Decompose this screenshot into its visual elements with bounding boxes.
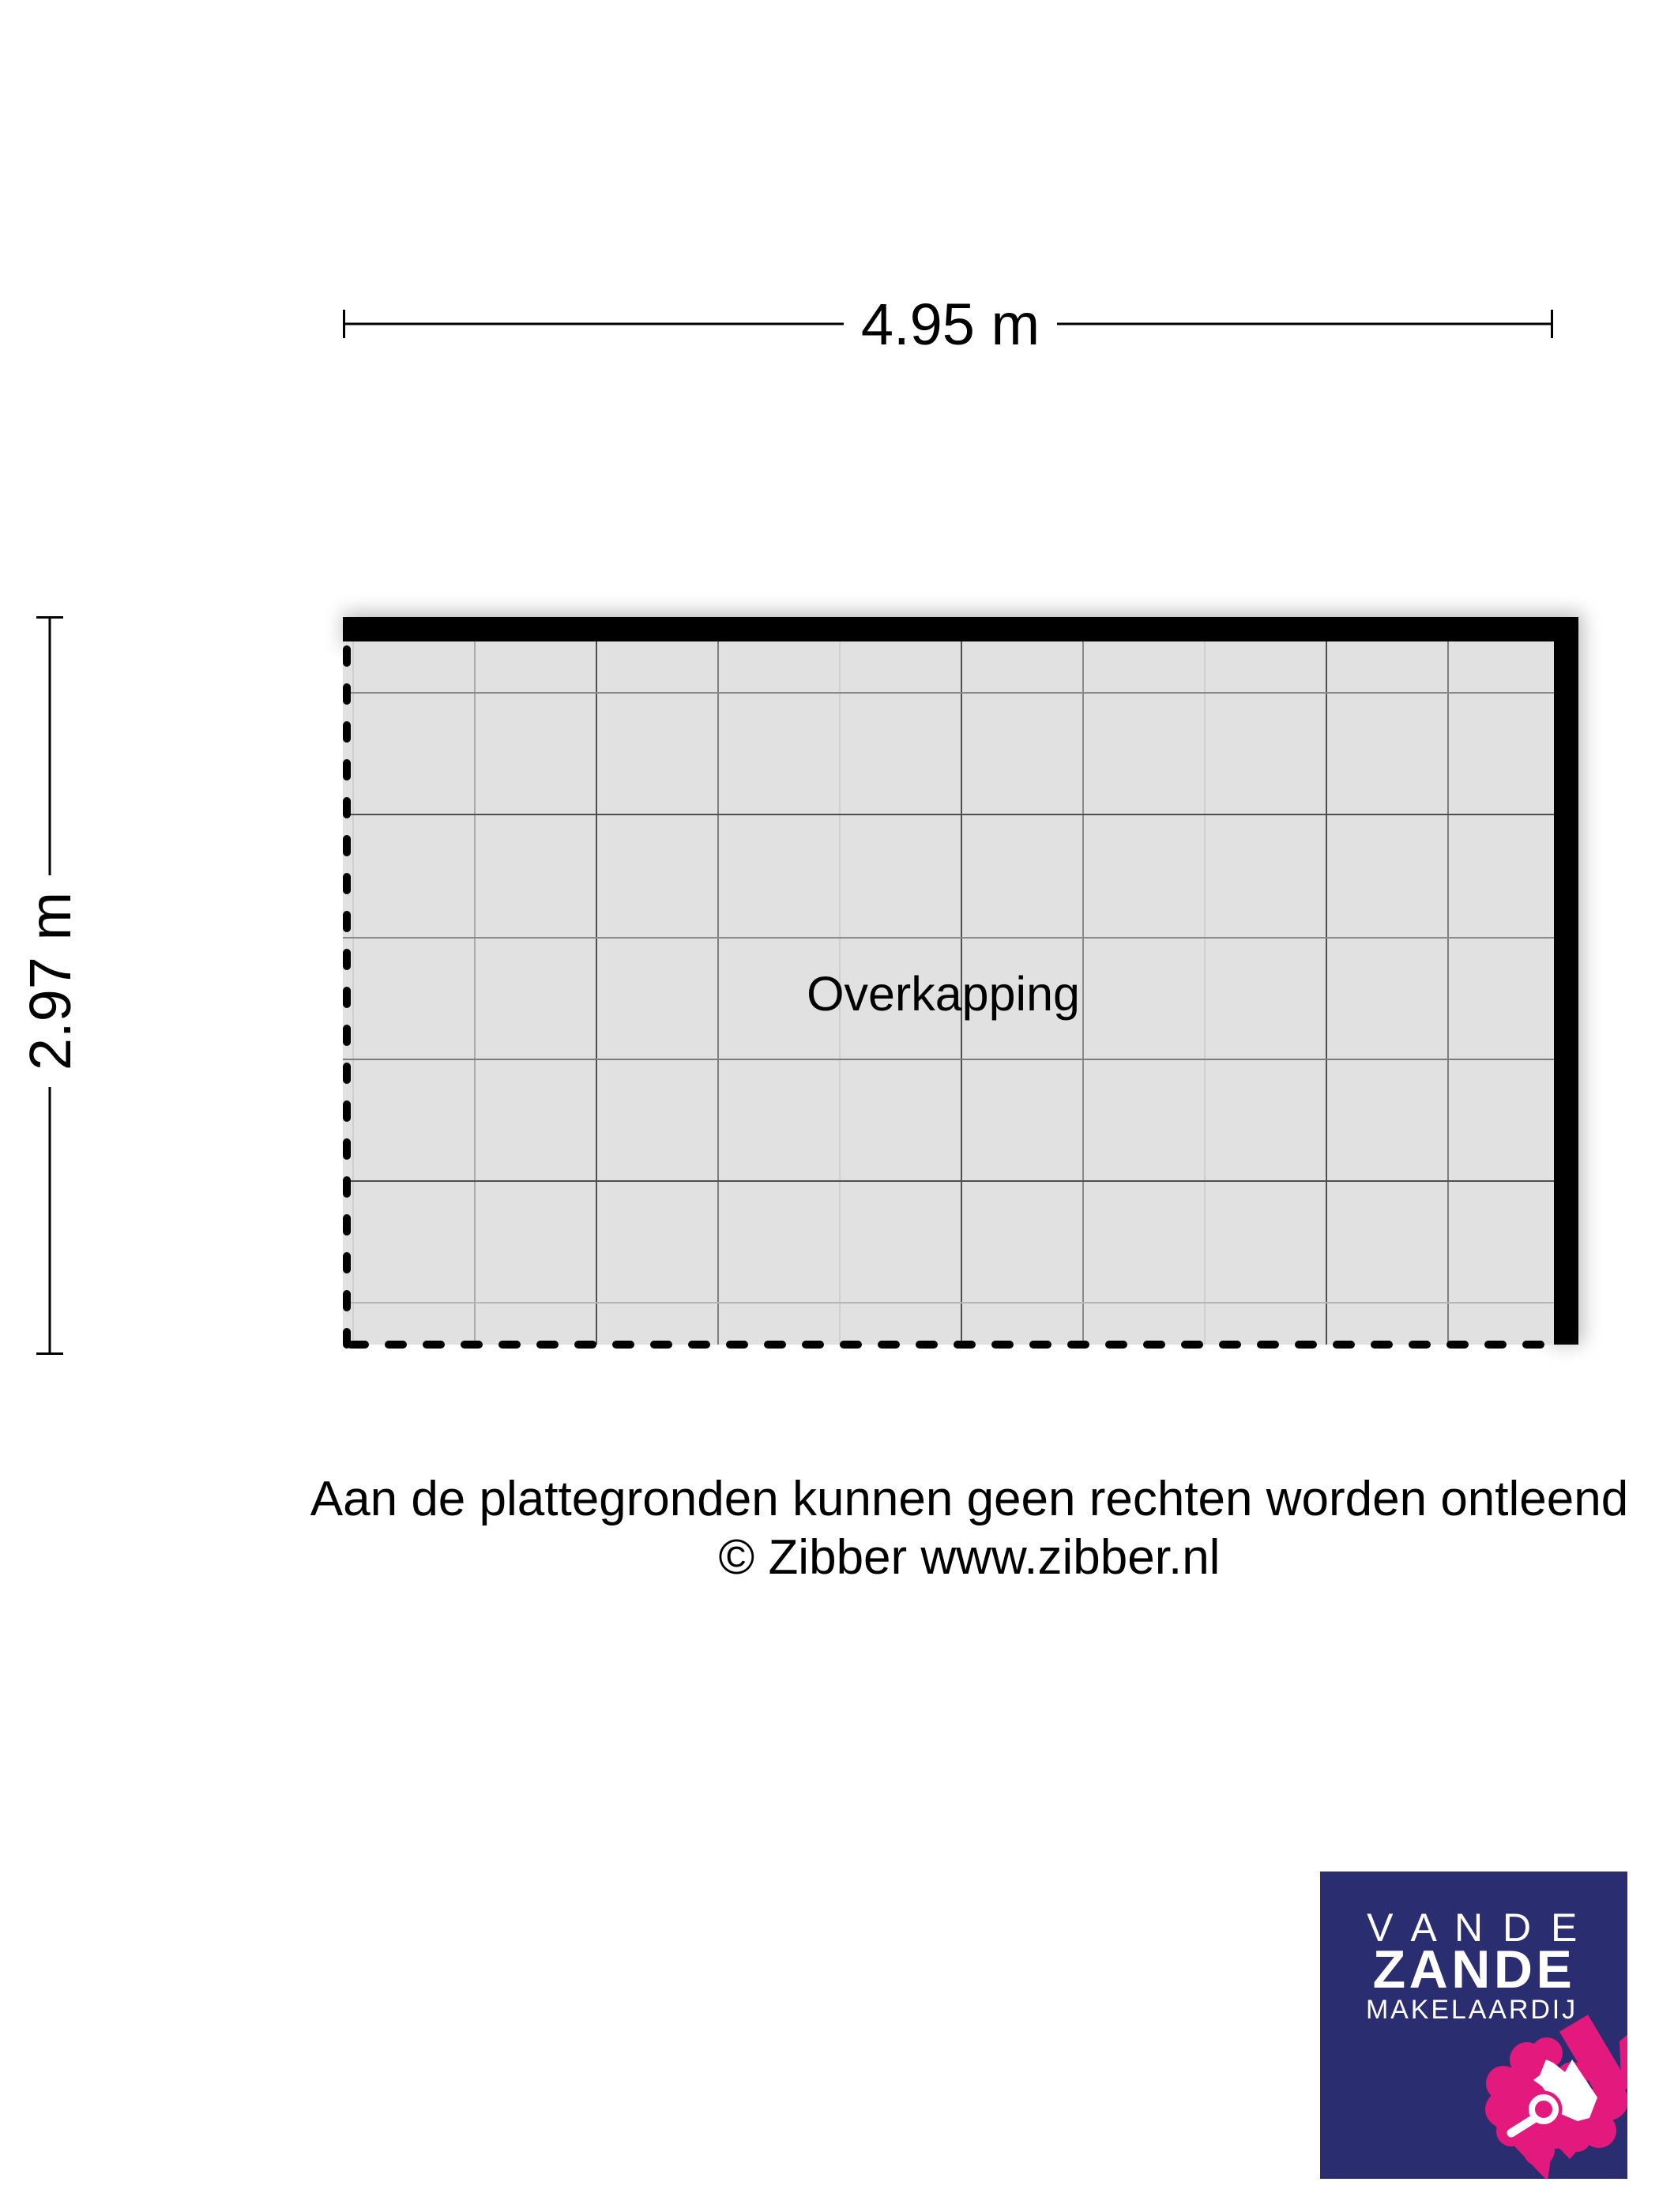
svg-text:MAKELAARDIJ: MAKELAARDIJ bbox=[1366, 1995, 1578, 2025]
svg-text:Overkapping: Overkapping bbox=[807, 967, 1080, 1021]
svg-text:ZANDE: ZANDE bbox=[1373, 1939, 1576, 1999]
svg-text:© Zibber www.zibber.nl: © Zibber www.zibber.nl bbox=[719, 1530, 1221, 1585]
svg-text:2.97 m: 2.97 m bbox=[17, 892, 83, 1070]
svg-text:4.95 m: 4.95 m bbox=[861, 292, 1040, 357]
svg-text:Aan de plattegronden kunnen ge: Aan de plattegronden kunnen geen rechten… bbox=[310, 1472, 1628, 1526]
